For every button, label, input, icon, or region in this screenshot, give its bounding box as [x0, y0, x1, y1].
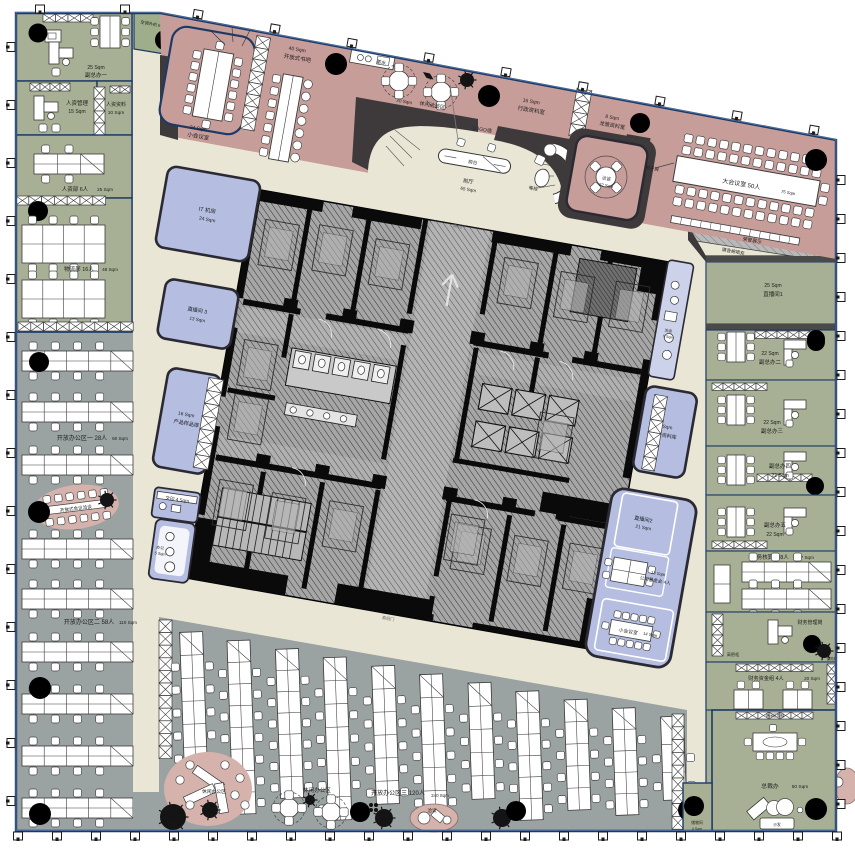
svg-text:22 Sqm: 22 Sqm	[761, 351, 778, 357]
svg-text:48 Sqm: 48 Sqm	[102, 267, 118, 272]
svg-text:财务管理岗: 财务管理岗	[797, 619, 822, 626]
svg-text:22 Sqm: 22 Sqm	[771, 473, 788, 479]
svg-text:25 Sqm: 25 Sqm	[764, 283, 781, 289]
svg-text:人资资料: 人资资料	[106, 101, 126, 108]
svg-text:财务资金组 4人: 财务资金组 4人	[748, 674, 783, 682]
svg-text:20 Sqm: 20 Sqm	[804, 676, 820, 681]
svg-text:沙发: 沙发	[773, 822, 781, 827]
svg-text:15 Sqm: 15 Sqm	[68, 109, 85, 115]
svg-text:副总办三: 副总办三	[761, 427, 784, 435]
svg-text:副总办一: 副总办一	[85, 71, 108, 79]
svg-text:10 Sqm: 10 Sqm	[108, 110, 125, 116]
svg-text:60 Sqm: 60 Sqm	[112, 436, 128, 441]
svg-text:开放办公区三 120人: 开放办公区三 120人	[371, 789, 425, 797]
svg-text:22 Sqm: 22 Sqm	[766, 532, 783, 538]
svg-text:22 Sqm: 22 Sqm	[763, 420, 780, 426]
svg-text:人资部 6人: 人资部 6人	[62, 185, 89, 193]
svg-text:110 Sqm: 110 Sqm	[119, 620, 137, 625]
svg-text:开放办公区一 28人: 开放办公区一 28人	[57, 434, 107, 442]
svg-text:25 Sqm: 25 Sqm	[97, 187, 113, 192]
svg-text:储物间: 储物间	[691, 820, 703, 825]
svg-text:50 Sqm: 50 Sqm	[792, 784, 809, 790]
svg-text:休闲办公区: 休闲办公区	[202, 788, 226, 795]
svg-text:休闲办公区: 休闲办公区	[303, 786, 331, 794]
svg-text:办公: 办公	[156, 543, 165, 550]
svg-text:休闲区等候: 休闲区等候	[766, 713, 785, 718]
svg-text:总裁办: 总裁办	[761, 782, 779, 790]
svg-text:人资管理: 人资管理	[66, 99, 89, 107]
svg-text:副总办二: 副总办二	[759, 358, 782, 366]
svg-text:开放办公区二 58人: 开放办公区二 58人	[64, 618, 114, 626]
svg-text:副总办五: 副总办五	[764, 521, 787, 529]
svg-text:高密柜: 高密柜	[727, 651, 740, 658]
svg-text:25 Sqm: 25 Sqm	[87, 65, 104, 71]
svg-text:直播间1: 直播间1	[763, 290, 783, 298]
svg-text:240 Sqm: 240 Sqm	[431, 793, 449, 798]
svg-text:副总办四: 副总办四	[769, 462, 791, 470]
svg-text:洽谈: 洽谈	[427, 807, 437, 814]
svg-text:物流部 16人: 物流部 16人	[64, 265, 94, 273]
